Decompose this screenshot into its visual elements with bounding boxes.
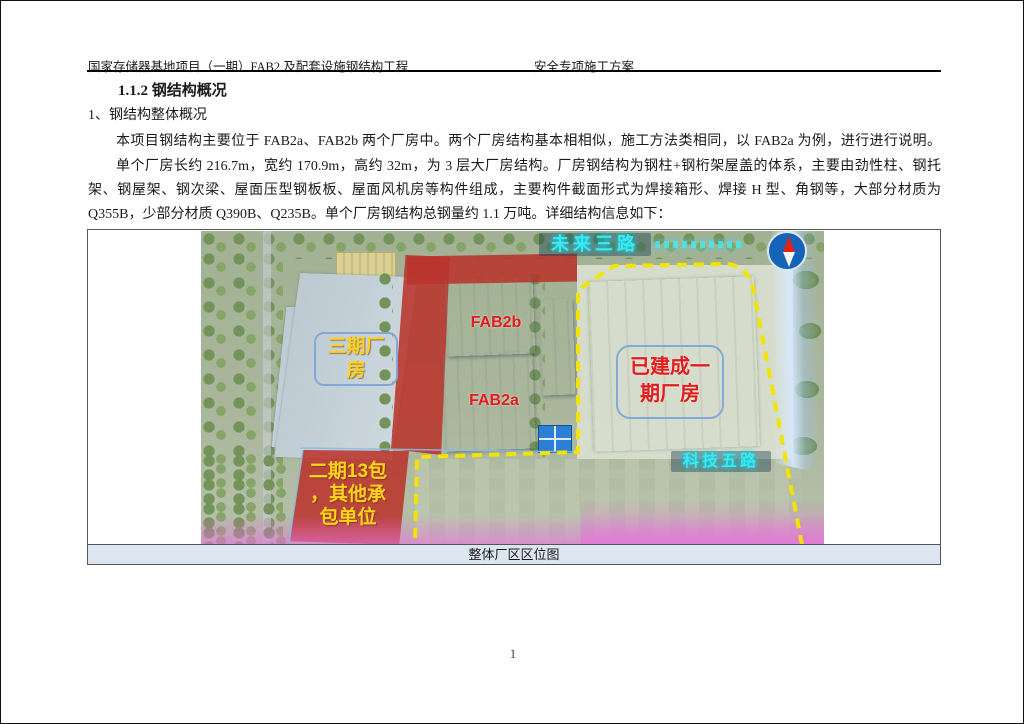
aerial-map-image: 未来三路 科技五路 三期厂 房 FAB2b FAB2a 已建成一 期厂房 二期1… <box>201 231 824 545</box>
body-paragraph-2-line-2: 架、钢屋架、钢次梁、屋面压型钢板板、屋面风机房等构件组成，主要构件截面形式为焊接… <box>88 179 941 203</box>
phase2-label-line3: 包单位 <box>289 506 407 529</box>
phase3-label-line2: 房 <box>316 359 396 383</box>
body-paragraph-2-line-3: Q355B，少部分材质 Q390B、Q235B。单个厂房钢结构总钢量约 1.1 … <box>88 203 941 227</box>
built-label-line2: 期厂房 <box>618 381 722 408</box>
built-label-line1: 已建成一 <box>618 354 722 381</box>
phase2-label-line2: ，其他承 <box>289 483 407 506</box>
phase3-label-line1: 三期厂 <box>316 335 396 359</box>
header-right-title: 安全专项施工方案 <box>534 56 634 75</box>
document-page: 国家存储器基地项目（一期）FAB2 及配套设施钢结构工程 安全专项施工方案 1.… <box>0 0 1024 724</box>
compass-icon <box>767 231 807 271</box>
body-paragraph-1: 本项目钢结构主要位于 FAB2a、FAB2b 两个厂房中。两个厂房结构基本相相似… <box>88 130 941 154</box>
figure-site-map: 未来三路 科技五路 三期厂 房 FAB2b FAB2a 已建成一 期厂房 二期1… <box>87 229 941 565</box>
road-lights-dots <box>655 241 741 248</box>
body-subheading: 1、钢结构整体概况 <box>88 104 941 128</box>
page-number: 1 <box>1 646 1024 662</box>
road-label-top: 未来三路 <box>539 233 651 256</box>
phase3-label-box: 三期厂 房 <box>314 332 398 386</box>
compass-needle-north <box>783 236 795 252</box>
built-phase1-label-box: 已建成一 期厂房 <box>616 345 724 419</box>
phase2-label-line1: 二期13包 <box>289 460 407 483</box>
phase2-label: 二期13包 ，其他承 包单位 <box>289 460 407 529</box>
compass-needle-south <box>783 252 795 267</box>
figure-caption: 整体厂区区位图 <box>88 544 940 564</box>
header-left-title: 国家存储器基地项目（一期）FAB2 及配套设施钢结构工程 <box>88 56 408 75</box>
section-heading: 1.1.2 钢结构概况 <box>118 79 227 100</box>
fab2a-label: FAB2a <box>461 392 527 410</box>
body-paragraph-2-line-1: 单个厂房长约 216.7m，宽约 170.9m，高约 32m，为 3 层大厂房结… <box>88 155 941 179</box>
fab2b-label: FAB2b <box>463 314 529 332</box>
header-rule <box>87 70 941 72</box>
road-label-right: 科技五路 <box>671 451 771 472</box>
